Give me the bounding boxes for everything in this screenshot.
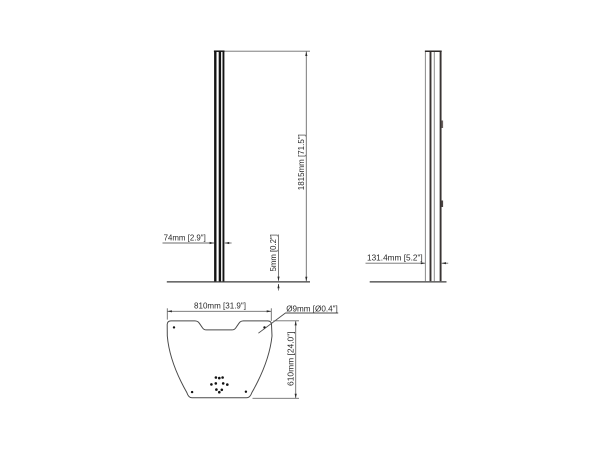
svg-text:810mm [31.9"]: 810mm [31.9"] bbox=[194, 301, 246, 311]
svg-text:5mm [0.2"]: 5mm [0.2"] bbox=[268, 234, 278, 271]
svg-text:74mm [2.9"]: 74mm [2.9"] bbox=[164, 232, 206, 242]
svg-text:Ø9mm [Ø0.4"]: Ø9mm [Ø0.4"] bbox=[286, 303, 338, 313]
svg-text:1815mm [71.5"]: 1815mm [71.5"] bbox=[296, 134, 306, 190]
svg-text:610mm [24.0"]: 610mm [24.0"] bbox=[286, 331, 296, 386]
svg-text:131.4mm [5.2"]: 131.4mm [5.2"] bbox=[367, 253, 423, 263]
